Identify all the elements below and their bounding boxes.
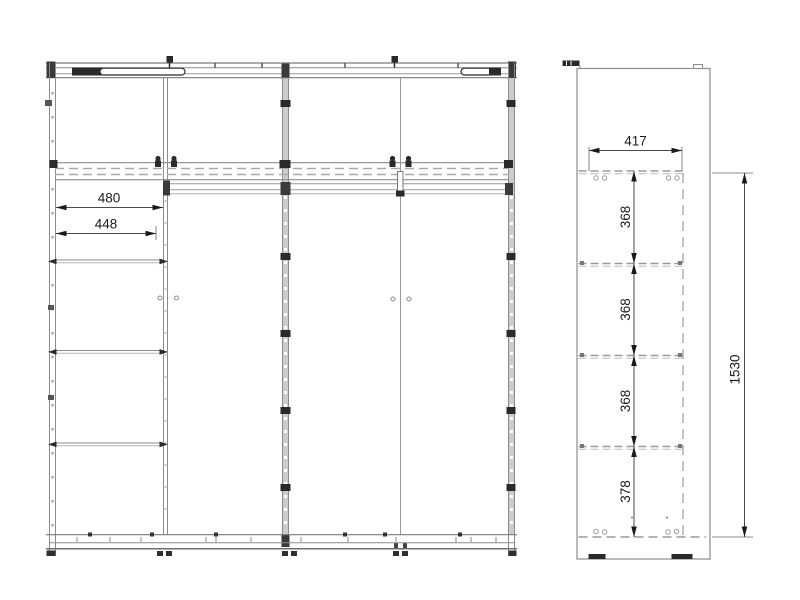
side-shelf-4: [579, 444, 684, 449]
track-end-cap-left: [47, 62, 56, 79]
dim-label-417: 417: [624, 134, 647, 149]
fixed-shelf: [50, 156, 514, 180]
dim-shelf-width-inner: 448: [56, 217, 156, 241]
left-wall: [45, 63, 56, 556]
dim-label-448: 448: [95, 217, 118, 232]
rail-support-left: [163, 181, 170, 196]
side-shelf-top: [579, 171, 684, 180]
track-knob-left: [167, 56, 174, 68]
rail-bracket-door-line: [396, 172, 405, 197]
left-handle-recess: [72, 68, 185, 76]
front-dimensions: 480 448: [56, 191, 163, 241]
dim-label-368-2: 368: [618, 298, 633, 321]
dim-label-368-1: 368: [618, 206, 633, 229]
side-bottom-panel: [579, 517, 707, 538]
divider-panel: [164, 78, 168, 535]
dim-label-1530: 1530: [728, 354, 743, 384]
dim-shelf-width-outer: 480: [56, 191, 163, 211]
rail-support-right: [505, 183, 513, 195]
shelf-3: [48, 442, 168, 448]
track-center-cap: [282, 64, 290, 79]
side-track-section: [563, 61, 581, 69]
shelf-clips: [50, 156, 514, 168]
right-wall: [507, 63, 516, 556]
dim-depth: 417: [589, 134, 682, 172]
side-shelf-2: [579, 261, 684, 266]
side-feet: [589, 554, 693, 559]
rail-support-center: [281, 182, 291, 195]
side-top-bracket: [694, 65, 703, 69]
side-shelf-3: [579, 353, 684, 358]
dim-bay-chain: 368 368 368 378: [618, 171, 637, 537]
dim-label-480: 480: [98, 191, 121, 206]
center-partition: [281, 78, 291, 547]
track-knob-right: [392, 56, 399, 68]
door-meeting-line: [394, 78, 407, 549]
front-view: [45, 56, 517, 556]
dim-label-368-3: 368: [618, 390, 633, 413]
wardrobe-drawing-svg: 480 448: [0, 0, 800, 600]
wardrobe-technical-drawing: 480 448: [0, 0, 800, 600]
shelf-2: [48, 349, 168, 355]
shelf-1: [48, 259, 168, 265]
dim-label-378: 378: [618, 480, 633, 503]
right-handle-recess: [461, 68, 501, 76]
feet: [47, 551, 517, 557]
dim-interior-height: 1530: [712, 173, 753, 537]
side-dimensions: 417 368 368 368 378 1530: [589, 134, 753, 538]
